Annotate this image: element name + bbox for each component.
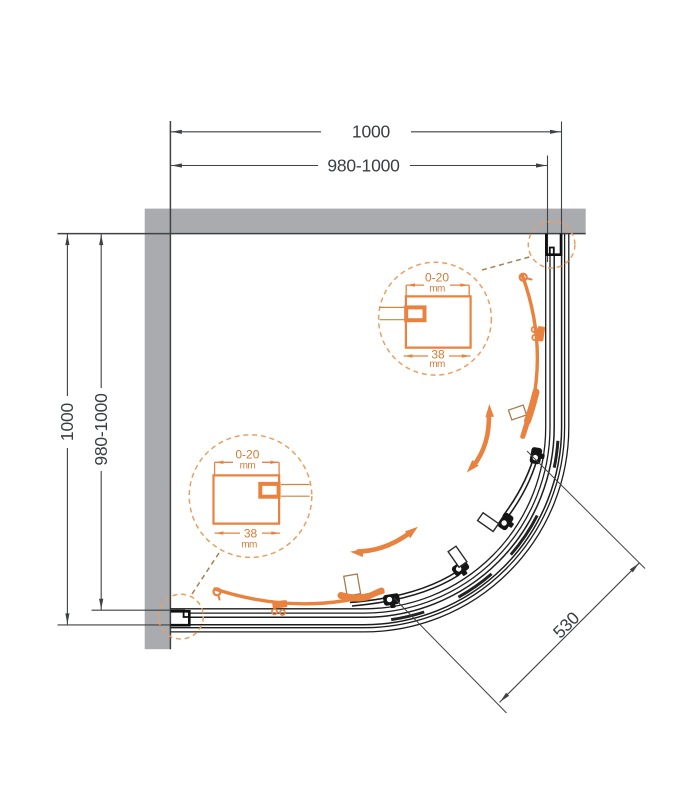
svg-text:mm: mm <box>429 283 445 294</box>
svg-text:38: 38 <box>244 527 258 541</box>
svg-text:980-1000: 980-1000 <box>327 155 400 175</box>
svg-text:0-20: 0-20 <box>235 448 259 462</box>
svg-text:1000: 1000 <box>352 122 391 142</box>
svg-text:mm: mm <box>241 540 257 551</box>
svg-text:mm: mm <box>240 461 256 472</box>
svg-text:mm: mm <box>429 359 445 370</box>
svg-text:530: 530 <box>549 608 584 643</box>
svg-text:980-1000: 980-1000 <box>91 393 111 466</box>
svg-text:1000: 1000 <box>57 402 77 441</box>
